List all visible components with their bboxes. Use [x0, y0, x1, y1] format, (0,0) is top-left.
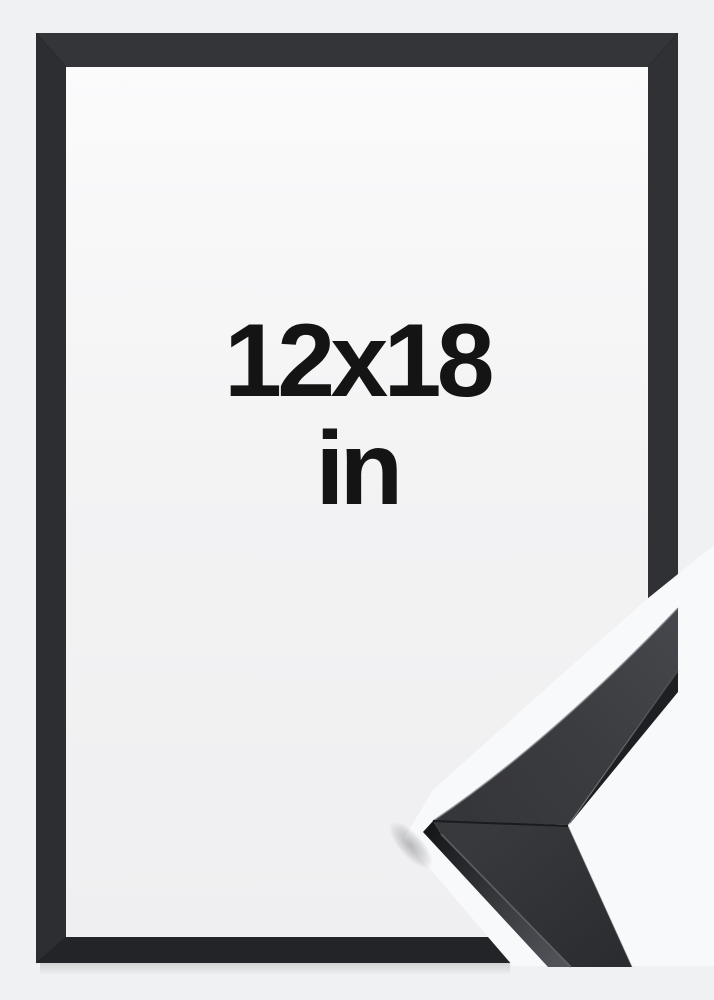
frame-drop-shadow — [40, 963, 510, 975]
frame-border-top — [36, 33, 678, 67]
frame-border-left — [36, 33, 66, 963]
product-photo: 12x18 in — [0, 0, 714, 1000]
size-label: 12x18 in — [66, 307, 648, 523]
size-label-unit: in — [66, 415, 648, 523]
size-label-dimensions: 12x18 — [66, 307, 648, 415]
